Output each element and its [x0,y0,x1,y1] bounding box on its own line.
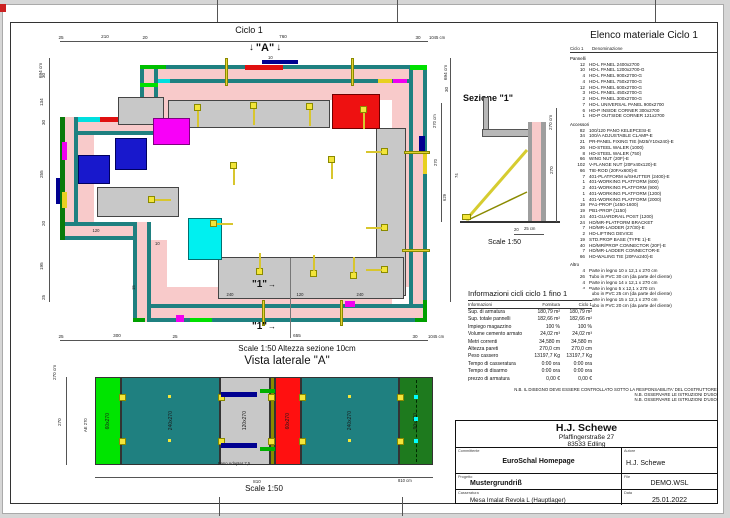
dim-label: 240 [352,293,368,298]
dim-total: 270 cm [548,106,553,130]
waler-bar [260,447,275,451]
fold-mark [217,0,218,22]
info-value-fornitura: 100 % [528,324,560,331]
company-cell: H.J. Schewe Pfaffingerstraße 27 83533 Ed… [456,421,717,447]
prop-icon [256,268,263,275]
dim-label: 120 [88,229,104,234]
fold-mark [402,497,403,516]
dim-line-vista-bottom [95,477,433,478]
formwork-band [151,240,167,287]
page: { "colors":{"teal":"#1F8080","wall_pink"… [0,0,730,518]
dim-label: 120 [292,293,308,298]
platform [218,257,404,299]
panel-accent [62,142,67,160]
prop-icon [350,272,357,279]
panel-accent [410,65,427,70]
info-table-title: Informazioni cicli ciclo 1 fino 1 [468,289,592,298]
info-row: Sup. di armatura 180,79 m² 180,79 m² [468,309,592,316]
info-row: Metri correnti 34,580 m 34,580 m [468,339,592,346]
connector-icon [299,438,306,445]
material-row: 10 Tubo in PVC 20 cm (da parte del clien… [570,303,718,309]
prop-icon [360,106,367,113]
connector-icon [168,395,171,398]
title-block: H.J. Schewe Pfaffingerstraße 27 83533 Ed… [455,420,718,504]
section-marker-a-label: "A" [256,42,274,54]
info-label: Sup. di armatura [468,309,528,316]
panel-accent [78,117,100,122]
info-row: Tempo di disarmo 0:00 ora 0:00 ora [468,368,592,375]
dim-label: 25 [41,288,46,300]
fold-mark [397,0,398,22]
dim-label: 270 [549,160,554,174]
dim-label: 134 [39,88,44,106]
dim-total: 1045 cm [429,36,445,41]
file-label: File [624,475,630,479]
waler-bar [221,443,257,448]
prop-icon [381,266,388,273]
info-value-ciclo: 100 % [560,324,592,331]
dim-label: 255 [39,160,44,178]
info-value-fornitura: 0:00 ora [528,361,560,368]
waler-bar [221,392,257,397]
info-value-ciclo: 0:00 ora [560,361,592,368]
dim-label: 30 [411,35,425,40]
data-cell: Data 25.01.2022 [621,489,717,505]
down-arrow-icon: ↓ [276,42,281,54]
autore-label: Autore [624,449,635,453]
info-value-fornitura: 34,580 m [528,339,560,346]
material-name: Tubo in PVC 20 cm (da parte del cliente) [585,303,672,309]
info-value-fornitura: 0,00 € [528,376,560,383]
prop-icon [381,148,388,155]
prop-icon [310,270,317,277]
vista-panel-label: 240x270 [347,411,353,430]
info-value-fornitura: 24,02 m³ [528,331,560,338]
material-qty: 1 [570,113,585,119]
dim-total: 1045 cm [428,335,444,340]
info-row: Impiego magazzino 100 % 100 % [468,324,592,331]
connector-icon [268,394,275,401]
dim-total: 270 cm [52,358,57,380]
dim-label: 195 [39,252,44,270]
dim-line-left [49,58,50,302]
connector-icon [119,438,126,445]
dim-total: 810 cm [398,479,412,484]
vista-panel-label: 120x270 [242,411,248,430]
dim-label: 20 [514,228,519,233]
dim-line-vista-left [66,377,67,465]
connector-icon [268,438,275,445]
panel-accent [393,79,407,83]
autore-cell: Autore H.J. Schewe [621,447,717,473]
info-value-fornitura: 182,66 m² [528,316,560,323]
dim-label: 20 [41,214,46,226]
fold-mark [655,0,656,22]
vista-panel-label: 60x270 [105,413,111,429]
dim-label: 629 [443,185,448,201]
data-label: Data [624,491,632,495]
tie-rod [225,58,228,86]
section-marker-a: ↓ "A" ↓ [242,42,288,54]
panel-accent [190,318,212,322]
tie-rod [404,151,430,154]
info-header: Informazioni [468,302,528,307]
info-label: Peso cassero [468,353,528,360]
info-label: Volume cemento armato [468,331,528,338]
info-header: Ciclo 1 [560,302,592,307]
dim-label: 240 [222,293,238,298]
company-name: H.J. Schewe [456,422,717,434]
vista-panel-green: 60x270 [95,377,121,465]
dim-label: 30 [41,66,46,78]
vista-scale: Scale 1:50 [159,484,369,493]
dim-line-sezione-bottom [514,234,544,235]
prop-icon [230,162,237,169]
connector-icon [348,395,351,398]
vista-panel-label: 60x270 [285,413,291,429]
info-row: Altezza pareti 270,0 cm 270,0 cm [468,346,592,353]
wall-right [409,65,427,322]
corner-mark [0,4,6,12]
connector-icon [397,394,404,401]
vista-panel-teal: 240x270 [301,377,399,465]
panel-accent [140,65,166,69]
info-label: Altezza pareti [468,346,528,353]
info-row: Sup. totale pannelli 182,66 m² 182,66 m² [468,316,592,323]
dim-line-right [450,58,451,302]
info-header: Fornitura [528,302,560,307]
down-arrow-icon: ↓ [249,42,254,54]
dim-label: 25 [168,334,182,339]
panel-accent [140,83,158,87]
company-address1: Pfaffingerstraße 27 [456,434,717,441]
material-header-denominazione: Denominazione [592,46,623,51]
info-row: Peso cassero 13197,7 Kg 13197,7 Kg [468,353,592,360]
dim-label: 270 [434,152,439,166]
committente-label: Committente [458,449,480,453]
info-row: Tempo di casseratura 0:00 ora 0:00 ora [468,361,592,368]
info-value-ciclo: 182,66 m² [560,316,592,323]
working-platform [482,129,529,137]
info-value-ciclo: 0:00 ora [560,368,592,375]
vista-elevation: 60x270 240x270 120x270 60x270 240x270 90… [95,377,433,465]
panel-accent [245,65,283,70]
dim-line-bottom [60,340,428,341]
platform [97,187,179,217]
dim-label: 30 [444,80,449,92]
dashed-joint-line [416,380,417,462]
material-list-title: Elenco materiale Ciclo 1 [570,30,718,41]
sezione-scale: Scale 1:50 [488,239,521,247]
prop-icon [250,102,257,109]
sezione-braces [458,140,538,225]
info-value-ciclo: 13197,7 Kg [560,353,592,360]
right-arrow-icon: → [268,280,276,289]
panel-accent [419,136,425,152]
info-value-ciclo: 34,580 m [560,339,592,346]
panel-accent [345,301,355,307]
file-value: DEMO.WSL [622,480,717,487]
section-marker-1-label: "1" [252,279,267,290]
prop-icon [306,103,313,110]
section-marker-1: "1" → [252,321,276,332]
casseratura-label: Casseratura [458,491,479,495]
connector-icon [299,394,306,401]
material-list: Elenco materiale Ciclo 1 Ciclo 1 Denomin… [570,30,718,309]
nb-note: N.B. OSSERVARE LE ISTRUZIONI D'USO! [440,397,718,402]
marker-dot [414,439,418,443]
section-marker-1-label: "1" [252,321,267,332]
info-row: prezzo di armatura 0,00 € 0,00 € [468,376,592,383]
vista-left-label: AE 270 [84,410,89,432]
autore-value: H.J. Schewe [626,460,717,467]
vista-scale-note: Scale 1:50 Altezza sezione 10cm [147,344,447,353]
dim-label: 760 [272,34,294,39]
prop-icon [381,224,388,231]
connector-icon [348,439,351,442]
info-value-fornitura: 270,0 cm [528,346,560,353]
panel-accent [415,318,427,322]
info-label: Impiego magazzino [468,324,528,331]
prop-base [462,214,471,220]
nb-notes: N.B. IL DISEGNO DEVE ESSERE CONTROLLATO … [440,387,718,403]
vista-panel-label: 240x270 [168,411,174,430]
info-value-fornitura: 180,79 m² [528,309,560,316]
material-qty: 66 [570,254,585,260]
info-label: Sup. totale pannelli [468,316,528,323]
dim-line-right2 [441,103,442,222]
prop-icon [194,104,201,111]
dim-line-sezione [556,108,557,222]
section-marker-1: "1" → [252,279,276,290]
panel-accent [423,152,427,174]
dim-label: 25 cm [524,227,535,232]
dim-label: 270 cm [433,104,438,128]
right-arrow-icon: → [268,322,276,331]
info-table-header: Informazioni Fornitura Ciclo 1 [468,300,592,309]
panel-accent [62,192,67,208]
adapter-note: Pano Adapter 7,5 [214,462,254,467]
info-label: Tempo di disarmo [468,368,528,375]
info-label: prezzo di armatura [468,376,528,383]
info-label: Tempo di casseratura [468,361,528,368]
section-line-1 [290,258,291,338]
material-row: 1 HD-P OUTSIDE CORNER 121x2700 [570,113,718,119]
data-value: 25.01.2022 [622,497,717,504]
dim-label: 10 [155,242,160,247]
dim-label: 10 [268,56,273,61]
guardrail-post [483,97,489,130]
blue-panel-stack [78,155,110,184]
connector-icon [168,439,171,442]
panel-accent [378,79,392,83]
tie-rod [351,58,354,86]
progetto-cell: Progetto Mustergrundriß [456,473,621,489]
prop-icon [328,156,335,163]
dim-label: 270 [57,412,62,426]
info-label: Metri correnti [468,339,528,346]
prop-icon [210,220,217,227]
panel-accent [133,318,145,322]
info-table: Informazioni cicli ciclo 1 fino 1 Inform… [468,289,592,383]
marker-dot [414,417,418,421]
material-header-ciclo: Ciclo 1 [570,46,592,51]
progetto-value: Mustergrundriß [470,480,621,487]
casseratura-cell: Casseratura Mesa Imalat Revola L (Hauptl… [456,489,621,505]
info-value-ciclo: 270,0 cm [560,346,592,353]
tie-rod [402,249,430,252]
connector-icon [119,394,126,401]
dim-label: 30 [408,334,422,339]
connector-icon [397,438,404,445]
waler-bar [260,389,275,393]
red-panel-stack [332,94,380,129]
magenta-panel-stack [153,118,190,145]
info-value-ciclo: 0,00 € [560,376,592,383]
info-value-ciclo: 180,79 m² [560,309,592,316]
dim-label: 30 [41,113,46,125]
info-value-fornitura: 13197,7 Kg [528,353,560,360]
committente-value: EuroSchal Homepage [456,458,621,465]
info-value-fornitura: 0:00 ora [528,368,560,375]
fold-mark [219,497,220,516]
dim-label: 25 [55,334,67,339]
dim-label: 15 [132,280,137,290]
material-row: 66 HD-WALING TIE (20FAx240)-E [570,254,718,260]
info-row: Volume cemento armato 24,02 m³ 24,02 m³ [468,331,592,338]
dim-label: 25 [55,35,67,40]
panel-accent [158,79,170,83]
blue-panel-stack [115,138,147,170]
panel-accent [423,300,427,320]
dim-total: 694 cm [443,54,448,80]
info-value-ciclo: 24,02 m³ [560,331,592,338]
tie-rod [340,300,343,326]
dim-label: 210 [94,34,116,39]
prop-icon [148,196,155,203]
formwork-panel [541,122,546,222]
wall-lower-left [133,222,151,322]
dim-label: 20 [138,35,152,40]
file-cell: File DEMO.WSL [621,473,717,489]
marker-dot [414,395,418,399]
vista-title: Vista laterale "A" [137,355,437,368]
casseratura-value: Mesa Imalat Revola L (Hauptlager) [470,497,621,504]
committente-cell: Committente EuroSchal Homepage [456,447,621,473]
material-name: HD-WALING TIE (20FAx240)-E [585,254,653,260]
progetto-label: Progetto [458,475,472,479]
panel-accent [60,117,65,240]
material-name: HD-P OUTSIDE CORNER 121x2700 [585,113,664,119]
panel-accent [176,315,184,322]
vista-panel-teal: 240x270 [121,377,220,465]
material-list-header: Ciclo 1 Denominazione [570,46,718,53]
dim-label: 300 [106,333,128,338]
vista-panel-red: 60x270 [275,377,301,465]
